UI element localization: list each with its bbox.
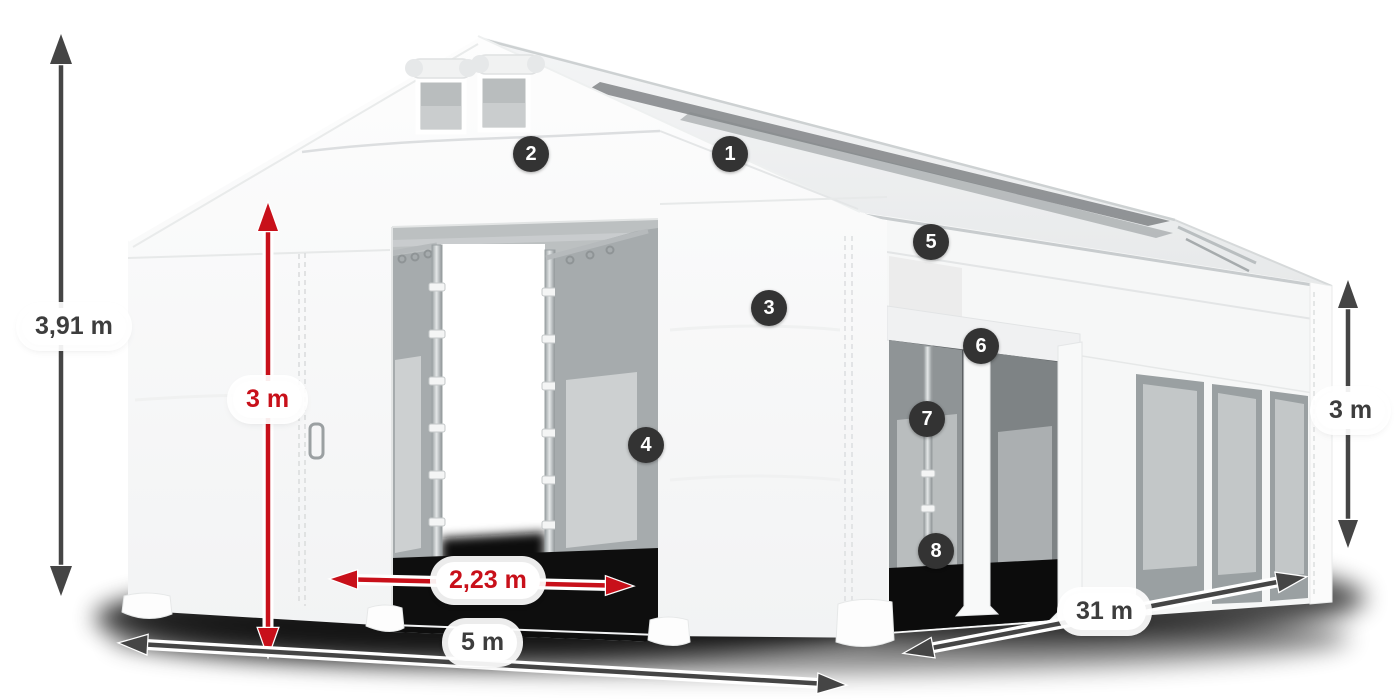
dim-label-front-width: 5 m: [448, 624, 517, 661]
dim-label-entrance-width: 2,23 m: [436, 562, 540, 599]
callout-2: 2: [513, 136, 549, 172]
skirt: [836, 599, 894, 646]
tent-illustration: [0, 0, 1400, 700]
callout-6: 6: [963, 328, 999, 364]
side-open-bay: [885, 334, 1090, 635]
dim-label-total-height: 3,91 m: [22, 308, 126, 345]
callout-3: 3: [751, 290, 787, 326]
callout-5: 5: [913, 224, 949, 260]
side-window-2: [1212, 384, 1262, 604]
skirt: [366, 605, 404, 632]
side-window-3: [1270, 391, 1308, 601]
dim-label-entrance-height: 3 m: [233, 381, 302, 418]
callout-4: 4: [628, 427, 664, 463]
dim-label-side-height: 3 m: [1316, 392, 1385, 429]
skirt: [122, 593, 172, 619]
side-window-1: [1136, 374, 1204, 602]
callout-1: 1: [712, 136, 748, 172]
tent-dimension-diagram: 3,91 m 3 m 2,23 m 5 m 31 m 3 m 1 2 3 4 5…: [0, 0, 1400, 700]
callout-8: 8: [918, 533, 954, 569]
callout-7: 7: [909, 401, 945, 437]
dim-label-side-length: 31 m: [1063, 593, 1146, 630]
skirt: [648, 617, 690, 646]
